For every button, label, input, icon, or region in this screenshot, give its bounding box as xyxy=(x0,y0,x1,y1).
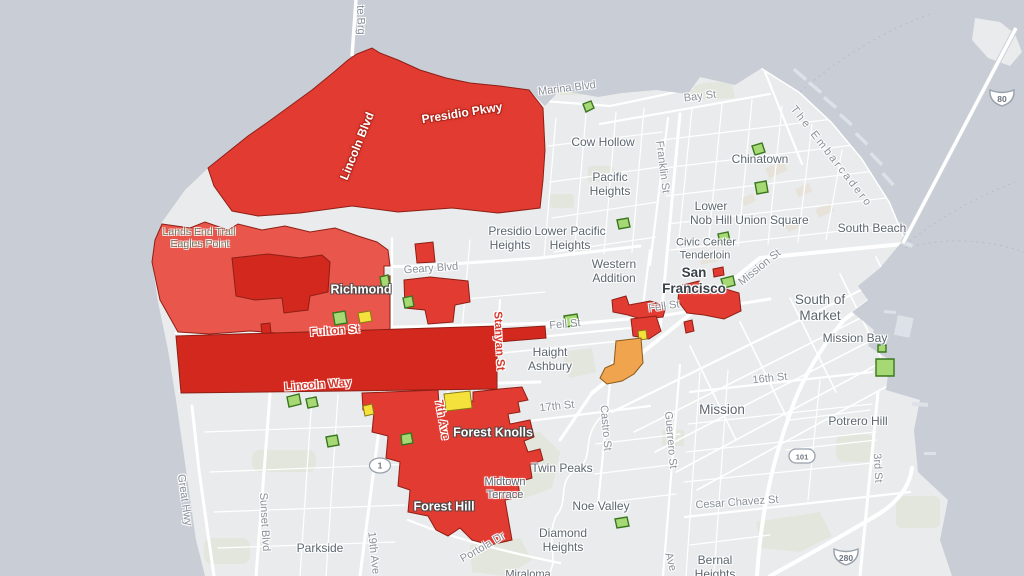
graded-area-yellow-small-1 xyxy=(363,404,374,416)
graded-area-inner-richmond-n xyxy=(415,242,435,263)
graded-area-civic-small-2 xyxy=(684,320,694,333)
graded-area-yellow-small-2 xyxy=(358,311,372,323)
map-svg xyxy=(0,0,1024,576)
graded-area-civic-small-1 xyxy=(713,267,724,277)
graded-area-golden-gate-park xyxy=(176,326,497,393)
graded-area-small-dark xyxy=(261,323,271,334)
map-canvas[interactable]: te BrgMarina BlvdBay StCow HollowChinato… xyxy=(0,0,1024,576)
graded-area-yellow-inner-sunset xyxy=(444,391,472,411)
